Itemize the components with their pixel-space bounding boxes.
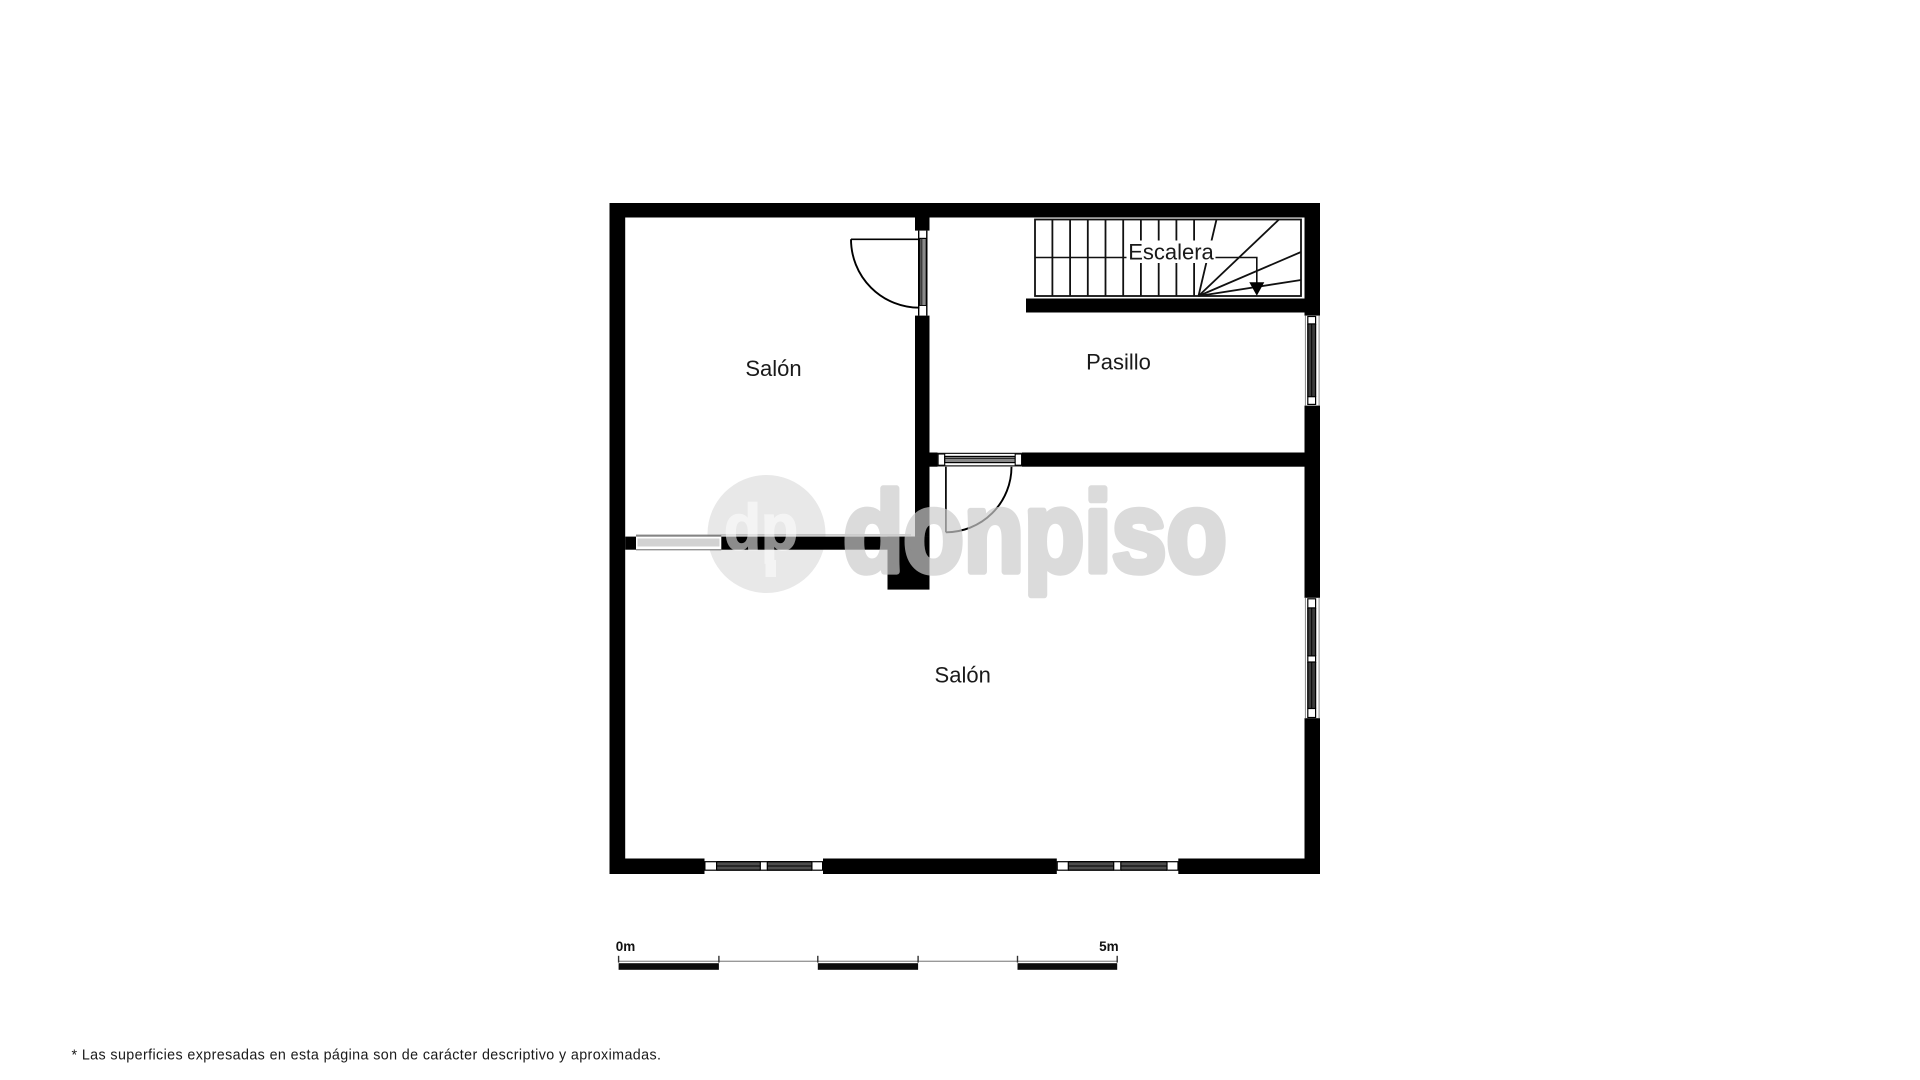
svg-text:Salón: Salón	[745, 356, 801, 381]
svg-text:5m: 5m	[1099, 939, 1119, 954]
svg-text:Pasillo: Pasillo	[1086, 349, 1151, 374]
svg-text:donpiso: donpiso	[843, 470, 1226, 597]
svg-text:Salón: Salón	[935, 663, 991, 688]
svg-text:dp: dp	[724, 490, 798, 563]
svg-text:Escalera: Escalera	[1128, 240, 1214, 265]
svg-text:0m: 0m	[616, 939, 636, 954]
svg-text:* Las superficies expresadas e: * Las superficies expresadas en esta pág…	[72, 1047, 662, 1063]
